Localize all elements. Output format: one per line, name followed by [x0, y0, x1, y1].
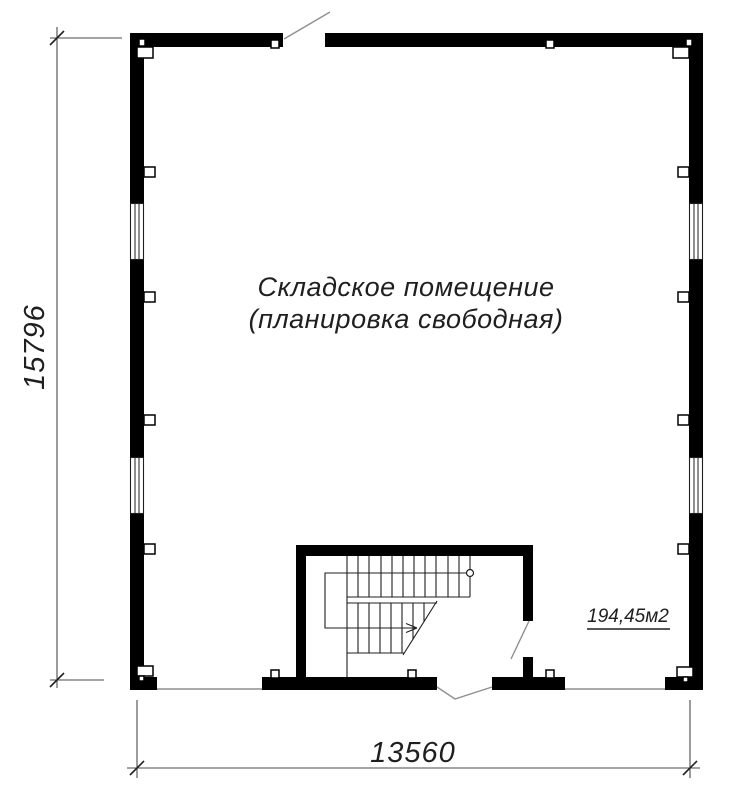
pilaster-left-4 — [144, 544, 155, 554]
stair-wall-right-stub — [523, 657, 533, 682]
wall-top-left-segment — [130, 33, 283, 47]
pilaster-bottom-3 — [546, 670, 554, 678]
corner-marker-bottom-left — [137, 666, 153, 676]
floor-plan-page: 15796 13560 Складское помещение (планиро… — [0, 0, 743, 800]
wall-right-upper — [689, 33, 703, 203]
stair-wall-left — [296, 545, 306, 690]
pilaster-top-2 — [546, 40, 554, 48]
pilaster-left-2 — [144, 292, 155, 302]
stair-door-leaf — [511, 621, 529, 659]
corner-marker-top-left — [137, 47, 153, 58]
wall-bottom-center-segment — [262, 677, 437, 690]
dimension-bottom: 13560 — [127, 700, 700, 778]
stair-start-circle — [467, 570, 474, 577]
window-left-upper — [131, 204, 144, 260]
window-right-lower — [690, 458, 703, 514]
door-leaf-top — [284, 12, 330, 39]
window-right-upper — [690, 204, 703, 260]
room-label-line1: Складское помещение — [258, 272, 555, 302]
wall-right-lower — [689, 513, 703, 690]
pilaster-top-1 — [271, 40, 279, 48]
stair-wall-top — [296, 545, 533, 556]
windows — [131, 204, 703, 514]
wall-right-middle — [689, 260, 703, 457]
dimension-width-label: 13560 — [370, 737, 456, 769]
column-markers — [137, 39, 693, 682]
stair-flight-upper — [347, 556, 470, 597]
wall-left-middle — [130, 260, 144, 457]
staircase — [296, 545, 533, 690]
pilaster-right-1 — [678, 167, 689, 177]
room-label-line2: (планировка свободная) — [249, 304, 564, 334]
pilaster-right-4 — [678, 544, 689, 554]
dimension-left: 15796 — [19, 27, 122, 688]
area-value: 194,45м2 — [587, 606, 669, 627]
pilaster-bottom-1 — [271, 670, 279, 678]
pilaster-right-2 — [678, 292, 689, 302]
floor-plan-drawing: 15796 13560 Складское помещение (планиро… — [0, 0, 743, 800]
pilaster-right-3 — [678, 415, 689, 425]
pilaster-left-3 — [144, 415, 155, 425]
pilaster-bottom-2 — [408, 670, 416, 678]
corner-marker-top-right — [673, 47, 689, 58]
wall-left-lower — [130, 513, 144, 690]
pilaster-left-1 — [144, 167, 155, 177]
door-swing-bottom-double — [437, 687, 492, 699]
area-label: 194,45м2 — [587, 606, 670, 629]
corner-marker-bottom-right — [677, 667, 693, 677]
door-openings — [157, 12, 665, 699]
exterior-walls — [130, 33, 703, 690]
wall-top-right-segment — [325, 33, 703, 47]
room-label: Складское помещение (планировка свободна… — [249, 272, 564, 334]
window-left-lower — [131, 458, 144, 514]
stair-wall-right-upper — [523, 545, 533, 621]
dimension-height-label: 15796 — [19, 304, 51, 390]
